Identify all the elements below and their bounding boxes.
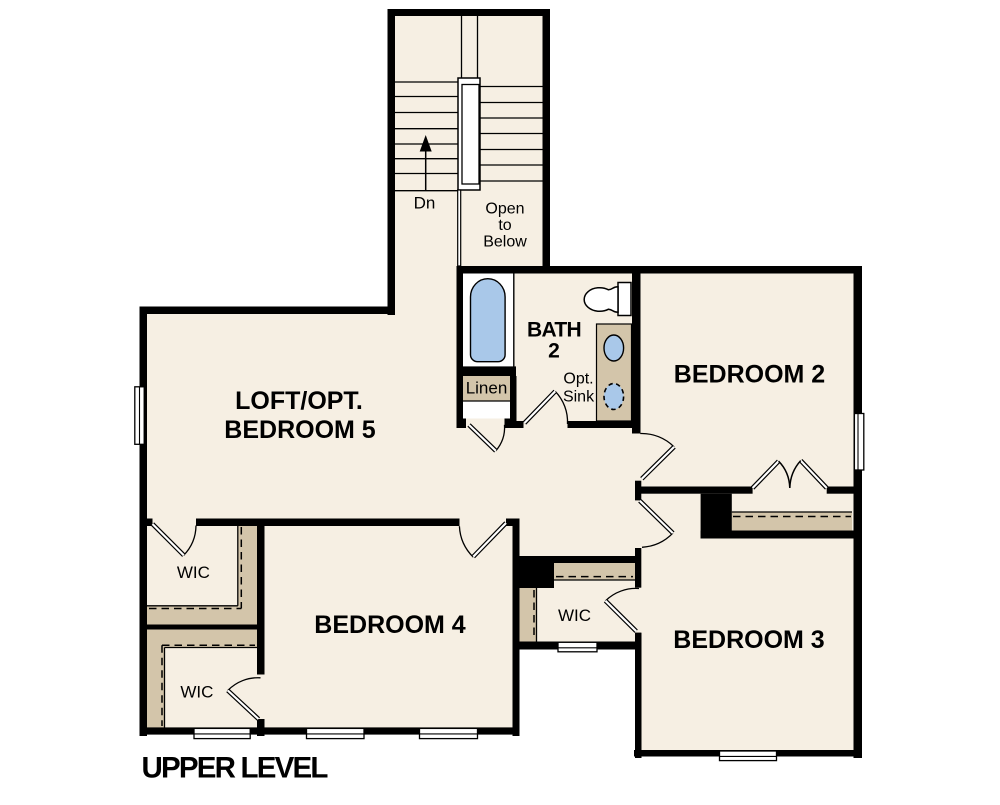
svg-text:BEDROOM 2: BEDROOM 2 [674,360,825,388]
svg-text:Dn: Dn [414,194,436,213]
svg-text:BEDROOM 4: BEDROOM 4 [314,611,466,639]
svg-text:LOFT/OPT.: LOFT/OPT. [235,387,363,415]
svg-text:WIC: WIC [177,563,210,582]
svg-text:BEDROOM 5: BEDROOM 5 [224,416,376,444]
svg-text:Sink: Sink [563,389,595,406]
svg-text:UPPER LEVEL: UPPER LEVEL [142,751,329,784]
svg-text:BEDROOM 3: BEDROOM 3 [673,626,824,654]
svg-text:BATH: BATH [527,319,581,342]
svg-text:2: 2 [548,340,560,363]
svg-text:WIC: WIC [558,606,591,625]
svg-text:Linen: Linen [466,379,508,398]
svg-text:to: to [498,217,511,234]
svg-text:WIC: WIC [180,683,213,702]
svg-text:Opt.: Opt. [563,371,593,388]
svg-text:Below: Below [483,234,527,251]
svg-text:Open: Open [485,201,524,218]
